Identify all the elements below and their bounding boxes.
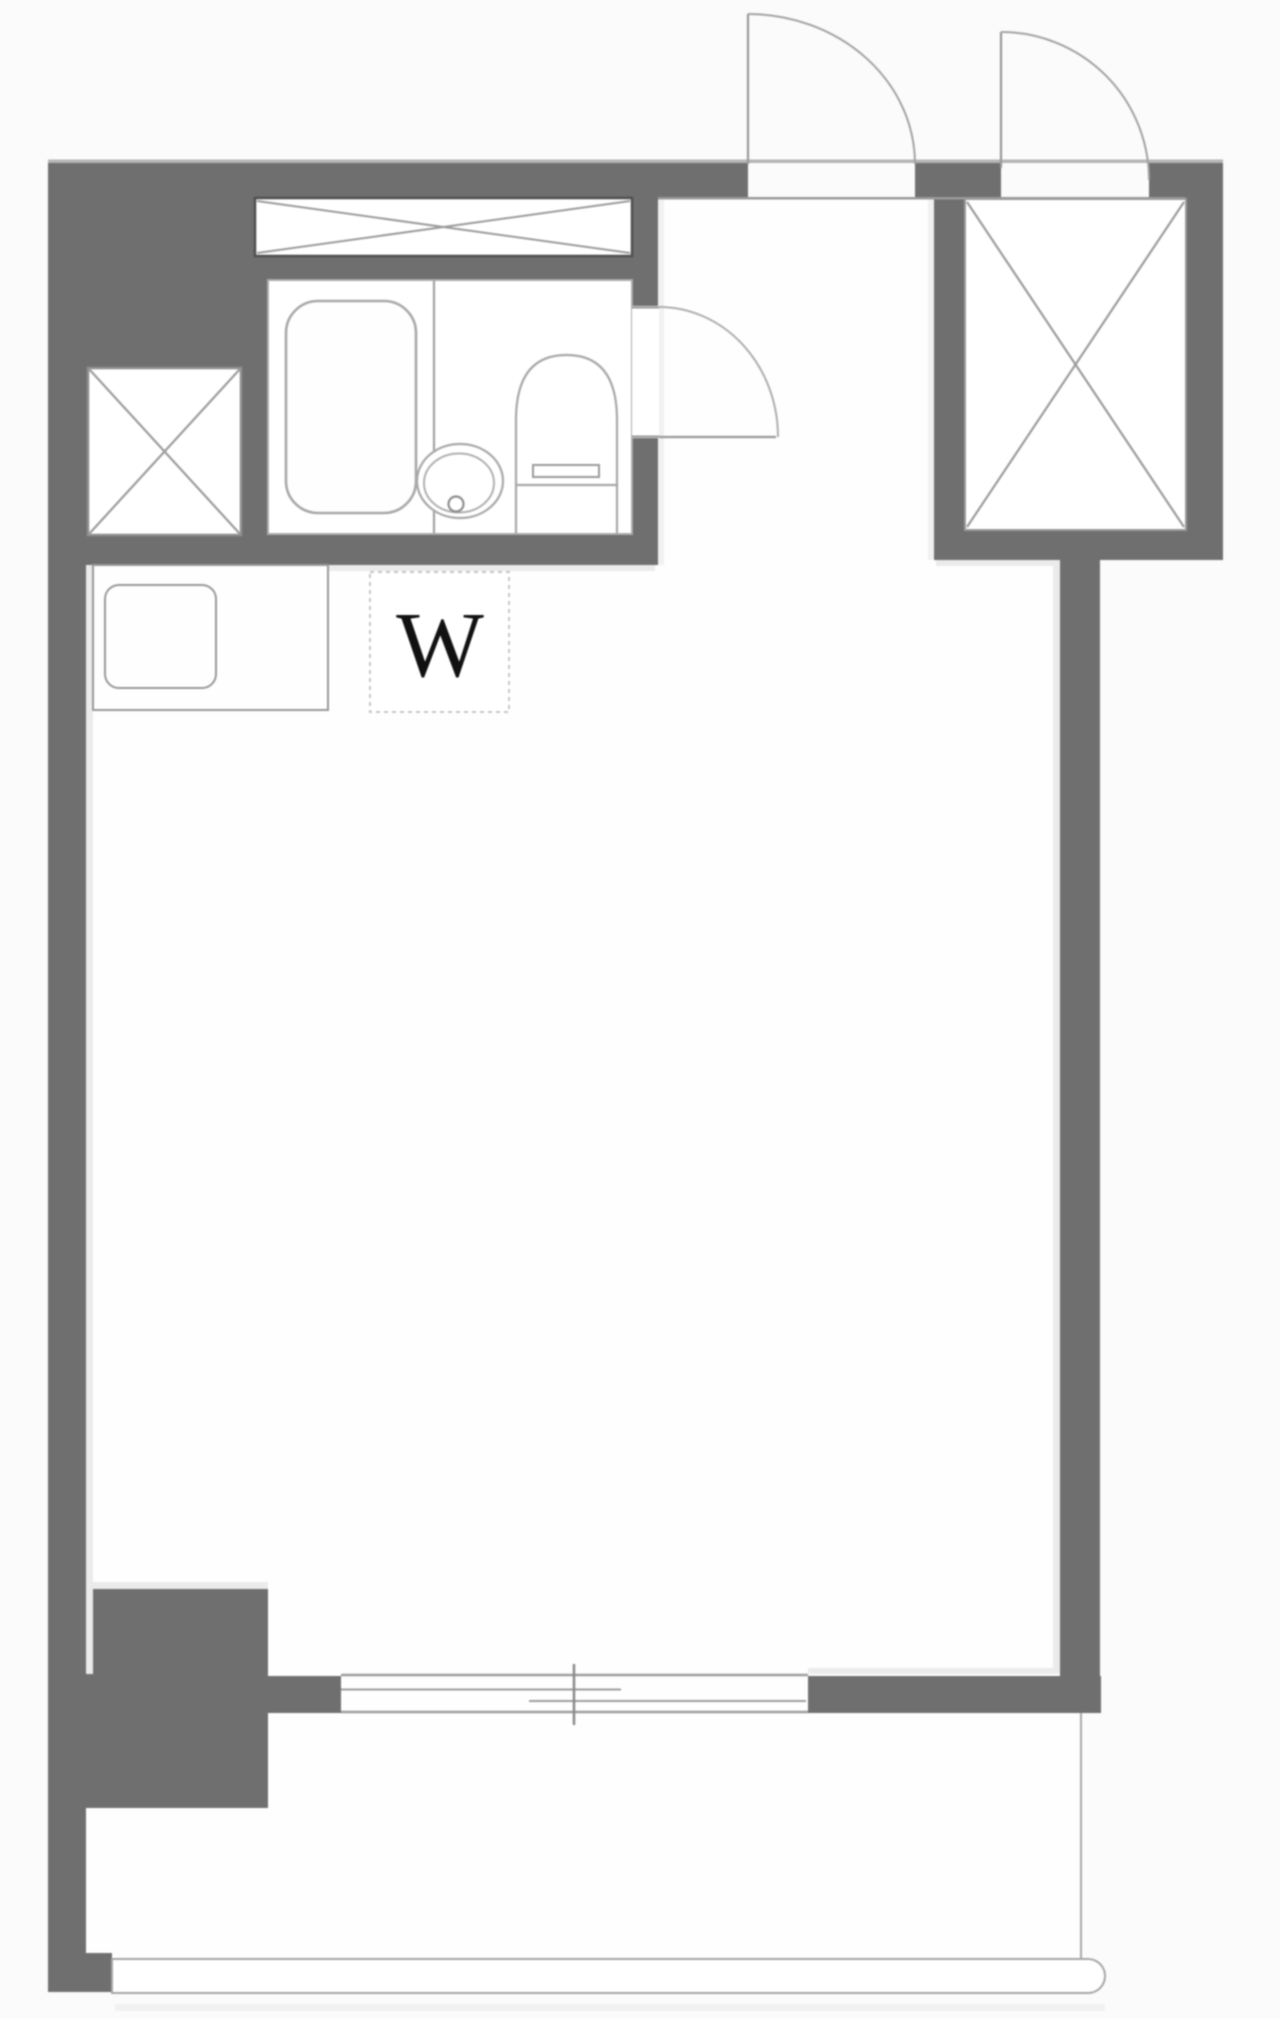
svg-text:W: W (396, 594, 484, 697)
